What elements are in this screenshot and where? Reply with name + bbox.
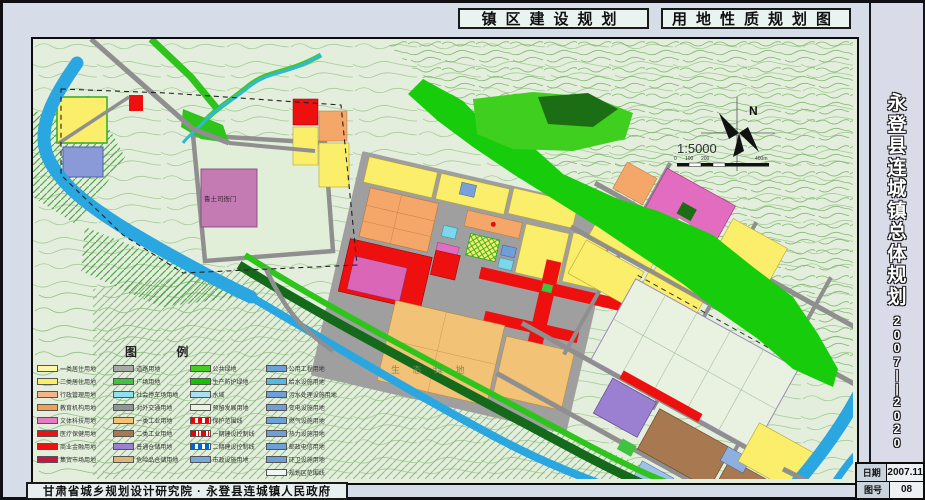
vertical-char: 总 xyxy=(887,222,906,244)
legend-label: 广场用地 xyxy=(136,377,160,386)
legend-swatch xyxy=(190,430,211,437)
legend-item: 生产防护绿地 xyxy=(190,376,261,387)
legend-label: 一期建设控制线 xyxy=(213,429,255,438)
legend-swatch xyxy=(190,365,211,372)
legend-item: 二类居住用地 xyxy=(37,376,108,387)
legend-item: 公共绿地 xyxy=(190,363,261,374)
legend-label: 公共绿地 xyxy=(213,364,237,373)
legend-item: 行政管理用地 xyxy=(37,389,108,400)
legend-label: 保护范围线 xyxy=(213,416,243,425)
legend-swatch xyxy=(266,365,287,372)
legend-swatch xyxy=(266,456,287,463)
legend-swatch xyxy=(113,430,134,437)
legend-item: 一类工业用地 xyxy=(113,415,184,426)
legend: 图 例 一类居住用地二类居住用地行政管理用地教育机构用地文体科技用地医疗保健用地… xyxy=(37,343,337,475)
legend-swatch xyxy=(266,391,287,398)
legend-swatch xyxy=(37,365,58,372)
vertical-char: 0 xyxy=(894,410,901,424)
vertical-char: 划 xyxy=(887,287,906,309)
legend-label: 道路用地 xyxy=(136,364,160,373)
vertical-char: 规 xyxy=(887,265,906,287)
legend-item: 普通仓储用地 xyxy=(113,441,184,452)
legend-swatch xyxy=(266,404,287,411)
legend-item: 规划区范围线 xyxy=(266,467,337,478)
vertical-char: 2 xyxy=(894,423,901,437)
legend-label: 商业金融用地 xyxy=(60,442,96,451)
legend-item: 医疗保健用地 xyxy=(37,428,108,439)
legend-label: 二期建设控制线 xyxy=(213,442,255,451)
legend-column-1: 一类居住用地二类居住用地行政管理用地教育机构用地文体科技用地医疗保健用地商业金融… xyxy=(37,363,108,478)
vertical-char: 连 xyxy=(887,158,906,180)
vertical-char: 0 xyxy=(894,437,901,451)
legend-item: 社会停车场用地 xyxy=(113,389,184,400)
legend-swatch xyxy=(113,365,134,372)
credit-box: 甘肃省城乡规划设计研究院 · 永登县连城镇人民政府 xyxy=(26,482,348,500)
legend-label: 教育机构用地 xyxy=(60,403,96,412)
legend-item: 一类居住用地 xyxy=(37,363,108,374)
eco-green-label: 生 态 绿 地 xyxy=(391,364,470,375)
legend-item: 商业金融用地 xyxy=(37,441,108,452)
legend-label: 社会停车场用地 xyxy=(136,390,178,399)
legend-item: 热力设施用地 xyxy=(266,428,337,439)
legend-item: 二类工业用地 xyxy=(113,428,184,439)
titleblock-value: 08 xyxy=(890,482,923,499)
legend-item: 公用工程用地 xyxy=(266,363,337,374)
vertical-char: 登 xyxy=(887,115,906,137)
legend-swatch xyxy=(37,456,58,463)
plan-years-vertical: 2007||2020 xyxy=(871,315,923,450)
legend-item: 变电设施用地 xyxy=(266,402,337,413)
legend-title: 图 例 xyxy=(125,343,337,360)
legend-label: 行政管理用地 xyxy=(60,390,96,399)
legend-item: 对外交通用地 xyxy=(113,402,184,413)
legend-swatch xyxy=(266,378,287,385)
legend-label: 一类工业用地 xyxy=(136,416,172,425)
vertical-char: | xyxy=(895,369,898,383)
legend-item: 二期建设控制线 xyxy=(190,441,261,452)
legend-item: 广场用地 xyxy=(113,376,184,387)
scale-text: 1:5000 xyxy=(677,141,717,156)
historic-site-label: 鲁土司衙门 xyxy=(204,194,237,203)
legend-label: 危险品仓储用地 xyxy=(136,455,178,464)
vertical-char: 0 xyxy=(894,329,901,343)
west-utility-parcel xyxy=(63,147,103,177)
legend-label: 水域 xyxy=(213,390,225,399)
titleblock-value: 2007.11 xyxy=(887,464,923,481)
legend-label: 对外交通用地 xyxy=(136,403,172,412)
legend-label: 预留发展用地 xyxy=(213,403,249,412)
legend-label: 燃气设施用地 xyxy=(289,416,325,425)
vertical-char: 2 xyxy=(894,315,901,329)
legend-columns: 一类居住用地二类居住用地行政管理用地教育机构用地文体科技用地医疗保健用地商业金融… xyxy=(37,363,337,478)
legend-item: 危险品仓储用地 xyxy=(113,454,184,465)
legend-item: 污水处理设施用地 xyxy=(266,389,337,400)
legend-swatch xyxy=(37,391,58,398)
legend-item: 教育机构用地 xyxy=(37,402,108,413)
vertical-char: 体 xyxy=(887,244,906,266)
west-residential-parcel xyxy=(57,97,107,143)
legend-swatch xyxy=(190,417,211,424)
legend-item: 市政设施用地 xyxy=(190,454,261,465)
legend-swatch xyxy=(190,378,211,385)
legend-label: 二类居住用地 xyxy=(60,377,96,386)
vertical-char: 2 xyxy=(894,396,901,410)
tab-landuse-plan[interactable]: 用地性质规划图 xyxy=(661,8,851,29)
legend-swatch xyxy=(113,456,134,463)
legend-swatch xyxy=(37,430,58,437)
legend-item: 环卫设施用地 xyxy=(266,454,337,465)
title-panel: 永登县连城镇总体规划 2007||2020 xyxy=(869,3,925,464)
legend-swatch xyxy=(37,378,58,385)
legend-label: 生产防护绿地 xyxy=(213,377,249,386)
titleblock-row: 图号08 xyxy=(857,481,923,499)
legend-swatch xyxy=(190,404,211,411)
legend-swatch xyxy=(37,443,58,450)
legend-swatch xyxy=(266,469,287,476)
legend-item: 邮政电信用地 xyxy=(266,441,337,452)
tab-construction-plan[interactable]: 镇区建设规划 xyxy=(458,8,649,29)
vertical-char: 永 xyxy=(887,93,906,115)
legend-item: 保护范围线 xyxy=(190,415,261,426)
legend-swatch xyxy=(190,391,211,398)
legend-label: 一类居住用地 xyxy=(60,364,96,373)
legend-label: 普通仓储用地 xyxy=(136,442,172,451)
legend-label: 给水设施用地 xyxy=(289,377,325,386)
legend-label: 二类工业用地 xyxy=(136,429,172,438)
legend-item: 预留发展用地 xyxy=(190,402,261,413)
legend-label: 变电设施用地 xyxy=(289,403,325,412)
legend-item: 一期建设控制线 xyxy=(190,428,261,439)
legend-label: 市政设施用地 xyxy=(213,455,249,464)
legend-item: 给水设施用地 xyxy=(266,376,337,387)
titleblock-label: 图号 xyxy=(857,482,890,499)
legend-label: 污水处理设施用地 xyxy=(289,390,337,399)
titleblock-label: 日期 xyxy=(857,464,887,481)
legend-label: 热力设施用地 xyxy=(289,429,325,438)
legend-swatch xyxy=(266,417,287,424)
svg-text:200: 200 xyxy=(701,156,710,162)
legend-item: 文体科技用地 xyxy=(37,415,108,426)
vertical-char: 0 xyxy=(894,342,901,356)
screenshot-root: 镇区建设规划 用地性质规划图 xyxy=(0,0,925,500)
plan-title-vertical: 永登县连城镇总体规划 xyxy=(871,93,923,308)
legend-label: 文体科技用地 xyxy=(60,416,96,425)
legend-label: 规划区范围线 xyxy=(289,468,325,477)
vertical-char: 县 xyxy=(887,136,906,158)
legend-swatch xyxy=(266,430,287,437)
legend-label: 邮政电信用地 xyxy=(289,442,325,451)
legend-item: 道路用地 xyxy=(113,363,184,374)
legend-column-3: 公共绿地生产防护绿地水域预留发展用地保护范围线一期建设控制线二期建设控制线市政设… xyxy=(190,363,261,478)
titleblock-table: 日期2007.11图号08 xyxy=(855,462,925,500)
legend-item: 水域 xyxy=(190,389,261,400)
legend-swatch xyxy=(113,417,134,424)
north-label: N xyxy=(749,104,758,118)
svg-text:400m: 400m xyxy=(755,156,768,162)
legend-swatch xyxy=(190,443,211,450)
vertical-char: | xyxy=(895,383,898,397)
drawing-sheet: 镇区建设规划 用地性质规划图 xyxy=(3,3,922,497)
legend-column-2: 道路用地广场用地社会停车场用地对外交通用地一类工业用地二类工业用地普通仓储用地危… xyxy=(113,363,184,478)
legend-label: 公用工程用地 xyxy=(289,364,325,373)
legend-swatch xyxy=(37,417,58,424)
titleblock-row: 日期2007.11 xyxy=(857,464,923,481)
vertical-char: 城 xyxy=(887,179,906,201)
legend-label: 医疗保健用地 xyxy=(60,429,96,438)
legend-swatch xyxy=(190,456,211,463)
legend-swatch xyxy=(266,443,287,450)
legend-column-4: 公用工程用地给水设施用地污水处理设施用地变电设施用地燃气设施用地热力设施用地邮政… xyxy=(266,363,337,478)
legend-swatch xyxy=(113,378,134,385)
legend-swatch xyxy=(113,404,134,411)
legend-swatch xyxy=(37,404,58,411)
legend-swatch xyxy=(113,443,134,450)
legend-swatch xyxy=(113,391,134,398)
svg-text:0: 0 xyxy=(674,156,677,162)
svg-text:100: 100 xyxy=(685,156,694,162)
legend-item: 燃气设施用地 xyxy=(266,415,337,426)
legend-label: 环卫设施用地 xyxy=(289,455,325,464)
legend-label: 集贸市场用地 xyxy=(60,455,96,464)
vertical-char: 镇 xyxy=(887,201,906,223)
legend-item: 集贸市场用地 xyxy=(37,454,108,465)
vertical-char: 7 xyxy=(894,356,901,370)
